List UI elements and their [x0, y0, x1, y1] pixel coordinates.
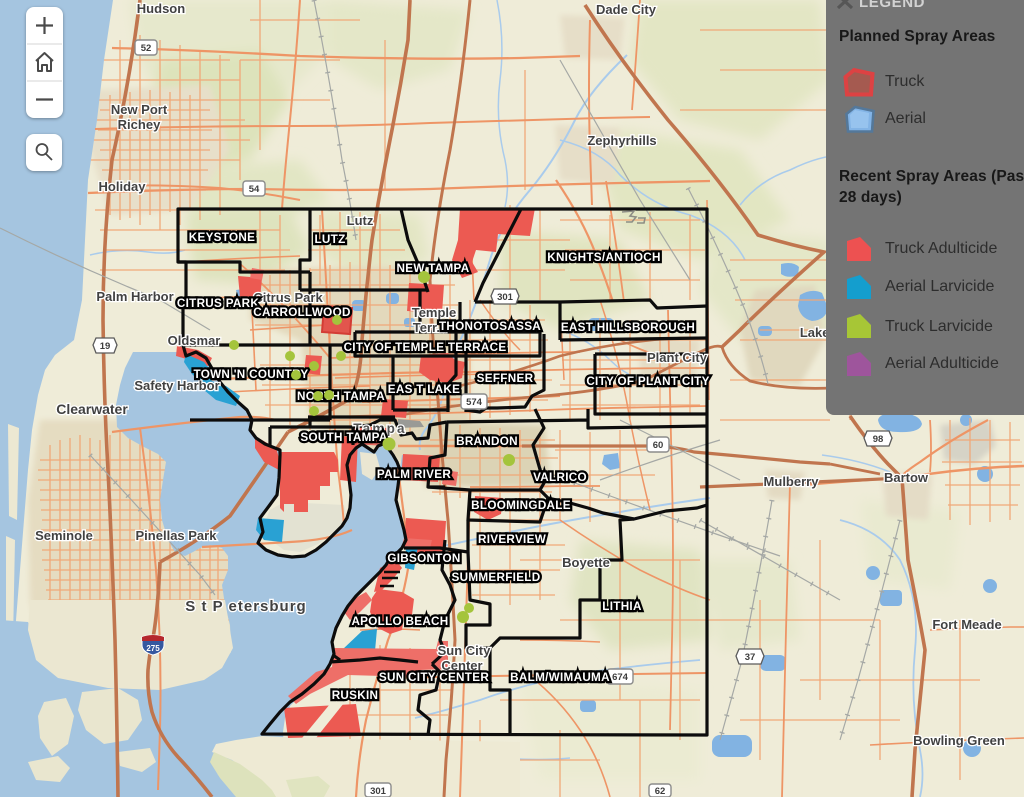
svg-text:62: 62 [655, 786, 666, 797]
svg-text:LUTZ: LUTZ [314, 233, 345, 246]
svg-text:EAS T LAKE: EAS T LAKE [388, 383, 460, 396]
svg-text:S t P etersburg: S t P etersburg [185, 598, 306, 615]
svg-text:GIBSONTON: GIBSONTON [387, 552, 460, 565]
svg-text:BLOOMINGDALE: BLOOMINGDALE [471, 499, 571, 512]
svg-text:Bartow: Bartow [884, 470, 929, 485]
svg-text:Richey: Richey [118, 117, 161, 132]
svg-text:PALM RIVER: PALM RIVER [377, 468, 451, 481]
svg-text:Zephyrhills: Zephyrhills [587, 133, 656, 148]
svg-text:VALRICO: VALRICO [533, 471, 587, 484]
svg-text:37: 37 [745, 652, 756, 663]
svg-text:98: 98 [873, 434, 884, 445]
svg-text:Seminole: Seminole [35, 528, 93, 543]
svg-text:Bowling Green: Bowling Green [913, 733, 1005, 748]
svg-text:Palm Harbor: Palm Harbor [96, 289, 173, 304]
svg-text:Citrus Park: Citrus Park [253, 290, 323, 305]
svg-text:Pinellas Park: Pinellas Park [136, 528, 218, 543]
svg-text:Sun City: Sun City [438, 643, 491, 658]
svg-text:EAST HILLSBOROUGH: EAST HILLSBOROUGH [561, 321, 695, 334]
svg-text:Hudson: Hudson [137, 1, 185, 16]
svg-text:NORTH TAMPA: NORTH TAMPA [297, 390, 385, 403]
svg-text:Temple: Temple [412, 305, 457, 320]
svg-text:60: 60 [653, 440, 664, 451]
svg-text:NEW TAMPA: NEW TAMPA [396, 262, 469, 275]
svg-text:LITHIA: LITHIA [602, 600, 642, 613]
svg-text:275: 275 [146, 644, 160, 653]
svg-text:SUN CITY CENTER: SUN CITY CENTER [379, 671, 489, 684]
svg-text:BALM/WIMAUMA: BALM/WIMAUMA [510, 671, 610, 684]
svg-text:CITY OF TEMPLE TERRACE: CITY OF TEMPLE TERRACE [344, 341, 507, 354]
svg-text:301: 301 [497, 292, 514, 303]
svg-text:SEFFNER: SEFFNER [477, 372, 534, 385]
svg-text:CITY OF PLANT CITY: CITY OF PLANT CITY [586, 375, 709, 388]
svg-text:674: 674 [612, 672, 629, 683]
svg-text:Boyette: Boyette [562, 555, 610, 570]
svg-text:52: 52 [141, 43, 152, 54]
svg-text:574: 574 [466, 397, 483, 408]
svg-text:Fort Meade: Fort Meade [932, 617, 1001, 632]
svg-text:301: 301 [370, 786, 387, 797]
svg-text:CITRUS PARK: CITRUS PARK [177, 297, 260, 310]
svg-text:SUMMERFIELD: SUMMERFIELD [451, 571, 540, 584]
svg-text:Clearwater: Clearwater [56, 401, 128, 417]
svg-text:Mulberry: Mulberry [764, 474, 820, 489]
svg-text:Dade City: Dade City [596, 2, 657, 17]
svg-text:BRANDON: BRANDON [456, 435, 518, 448]
svg-text:SOUTH TAMPA: SOUTH TAMPA [300, 431, 388, 444]
svg-text:19: 19 [100, 341, 111, 352]
svg-text:Lutz: Lutz [347, 213, 374, 228]
svg-text:APOLLO BEACH: APOLLO BEACH [351, 615, 448, 628]
svg-text:Holiday: Holiday [99, 179, 147, 194]
svg-text:New Port: New Port [111, 102, 168, 117]
svg-text:KEYSTONE: KEYSTONE [189, 231, 255, 244]
svg-text:RIVERVIEW: RIVERVIEW [478, 533, 547, 546]
svg-text:54: 54 [249, 184, 260, 195]
svg-text:Plant City: Plant City [647, 350, 708, 365]
svg-text:RUSKIN: RUSKIN [332, 689, 379, 702]
svg-text:Oldsmar: Oldsmar [168, 333, 221, 348]
svg-text:KNIGHTS/ANTIOCH: KNIGHTS/ANTIOCH [547, 251, 661, 264]
svg-text:THONOTOSASSA: THONOTOSASSA [439, 320, 541, 333]
